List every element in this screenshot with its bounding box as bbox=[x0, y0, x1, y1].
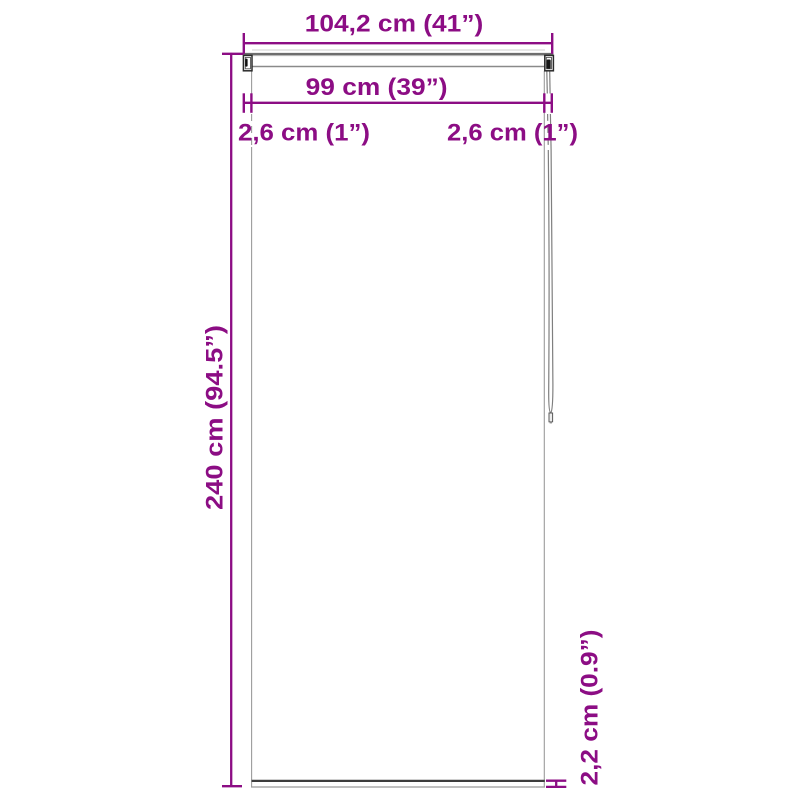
svg-text:104,2 cm (41”): 104,2 cm (41”) bbox=[305, 11, 484, 38]
svg-text:240 cm (94.5”): 240 cm (94.5”) bbox=[202, 325, 229, 510]
svg-text:2,2 cm (0.9”): 2,2 cm (0.9”) bbox=[577, 630, 604, 786]
svg-text:99 cm (39”): 99 cm (39”) bbox=[306, 74, 448, 101]
svg-text:2,6 cm (1”): 2,6 cm (1”) bbox=[447, 120, 578, 147]
svg-text:2,6 cm (1”): 2,6 cm (1”) bbox=[238, 120, 370, 147]
